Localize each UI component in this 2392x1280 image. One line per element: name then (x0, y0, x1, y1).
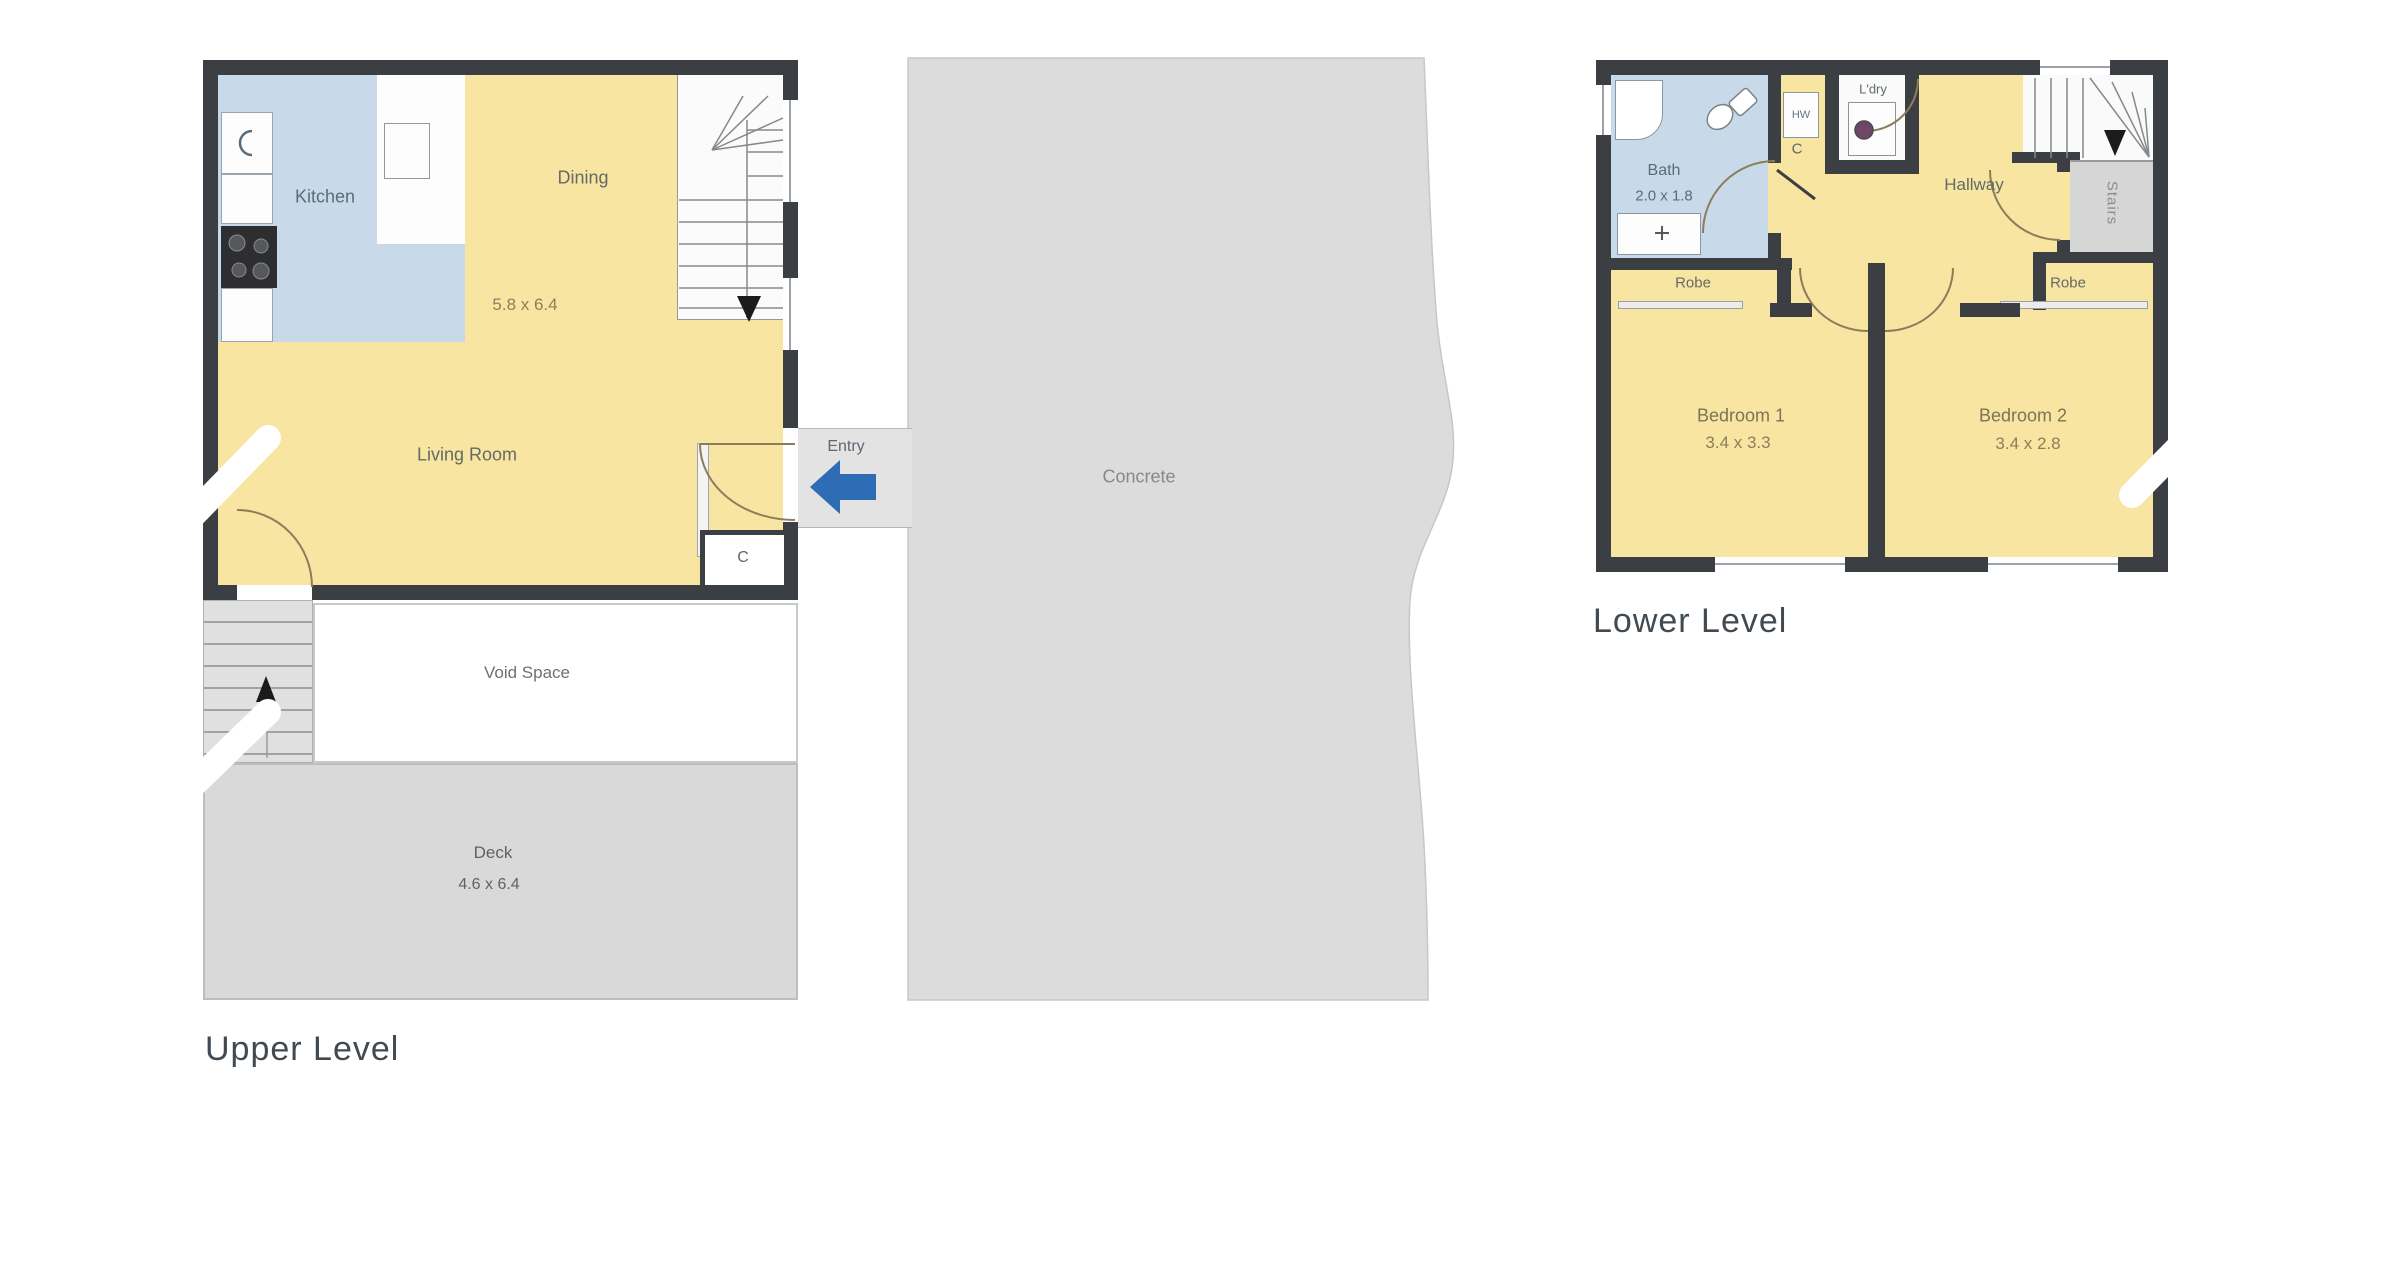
lower-level-title: Lower Level (1593, 602, 1787, 641)
robe-left-label: Robe (1675, 275, 1711, 292)
concrete-label: Concrete (1102, 467, 1175, 488)
bedroom2-label: Bedroom 2 (1979, 406, 2067, 427)
void-space-label: Void Space (484, 663, 570, 683)
cupboard-label: C (1792, 141, 1803, 158)
hallway-label: Hallway (1944, 175, 2004, 195)
floorplan-page: Kitchen Dining 5.8 x 6.4 Living Room Ent… (0, 0, 2392, 1280)
kitchen-label: Kitchen (295, 187, 355, 208)
laundry-label: L'dry (1859, 82, 1887, 97)
bedroom2-dims-label: 3.4 x 2.8 (1995, 434, 2060, 454)
entry-label: Entry (827, 438, 864, 456)
bedroom1-dims-label: 3.4 x 3.3 (1705, 433, 1770, 453)
bedroom1-label: Bedroom 1 (1697, 406, 1785, 427)
robe-right-label: Robe (2050, 275, 2086, 292)
deck-dims-label: 4.6 x 6.4 (458, 876, 519, 894)
labels-layer: Kitchen Dining 5.8 x 6.4 Living Room Ent… (0, 0, 2392, 1280)
dining-label: Dining (557, 168, 608, 189)
living-room-label: Living Room (417, 445, 517, 466)
stairs-label: Stairs (2104, 181, 2121, 225)
bath-label: Bath (1648, 162, 1681, 180)
bath-dims-label: 2.0 x 1.8 (1635, 188, 1693, 205)
entry-closet-label: C (737, 549, 749, 567)
deck-label: Deck (474, 843, 513, 863)
hot-water-label: HW (1792, 109, 1810, 121)
upper-level-title: Upper Level (205, 1030, 399, 1069)
living-dims-label: 5.8 x 6.4 (492, 295, 557, 315)
